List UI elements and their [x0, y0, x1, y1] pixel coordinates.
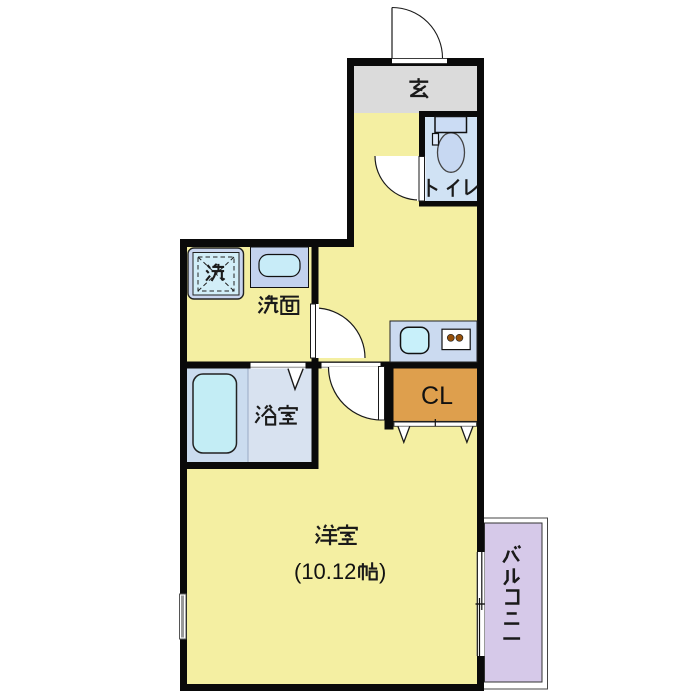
svg-text:CL: CL [421, 382, 453, 410]
svg-text:(10.12: (10.12 [294, 559, 356, 584]
svg-text:): ) [379, 559, 386, 584]
